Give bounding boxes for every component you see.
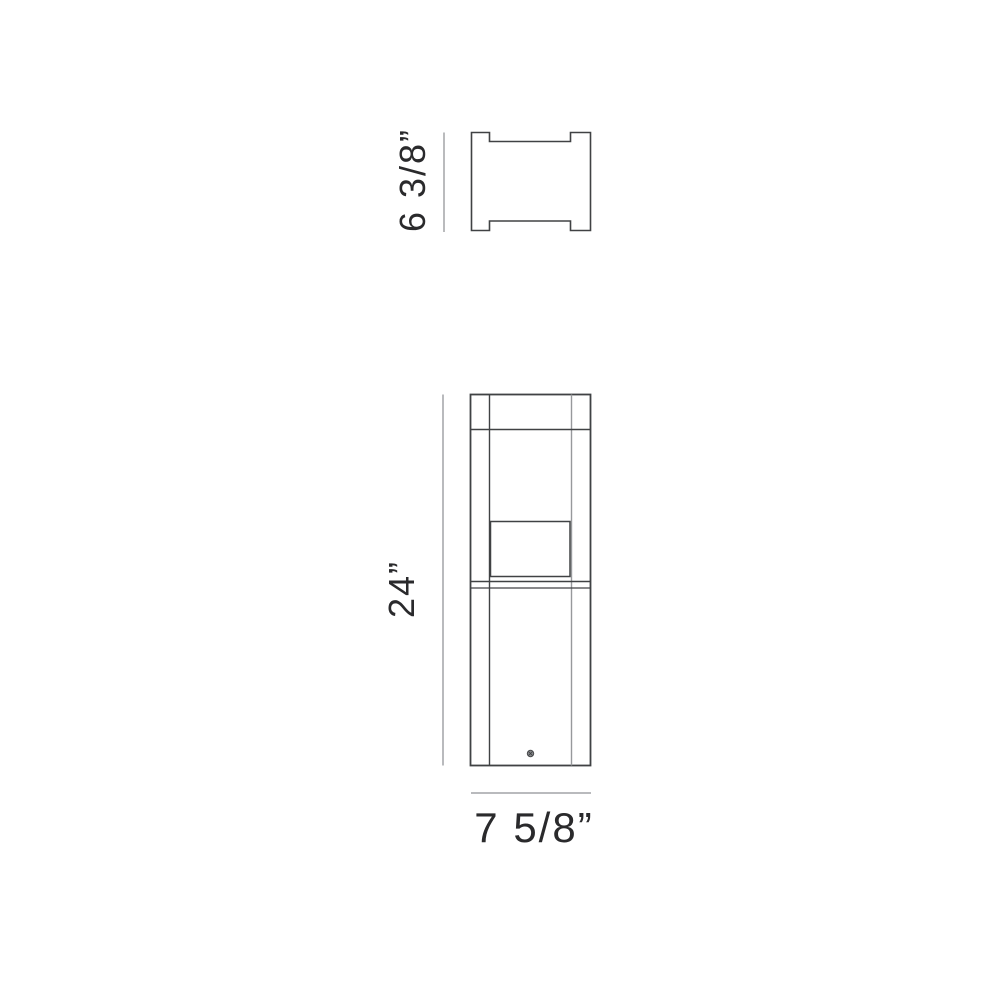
top-view [472, 133, 591, 231]
front-view-height-label: 24” [384, 560, 420, 618]
front-view-lamp-aperture [491, 522, 571, 577]
screw-icon [527, 750, 533, 756]
top-view-height-label: 6 3/8” [395, 128, 431, 232]
front-view-width-label: 7 5/8” [474, 807, 593, 849]
diagram-canvas: 6 3/8” 24” 7 5/8” [0, 0, 1000, 1000]
top-view-outline [472, 133, 591, 231]
front-view [471, 395, 591, 766]
front-view-outline [471, 395, 591, 766]
